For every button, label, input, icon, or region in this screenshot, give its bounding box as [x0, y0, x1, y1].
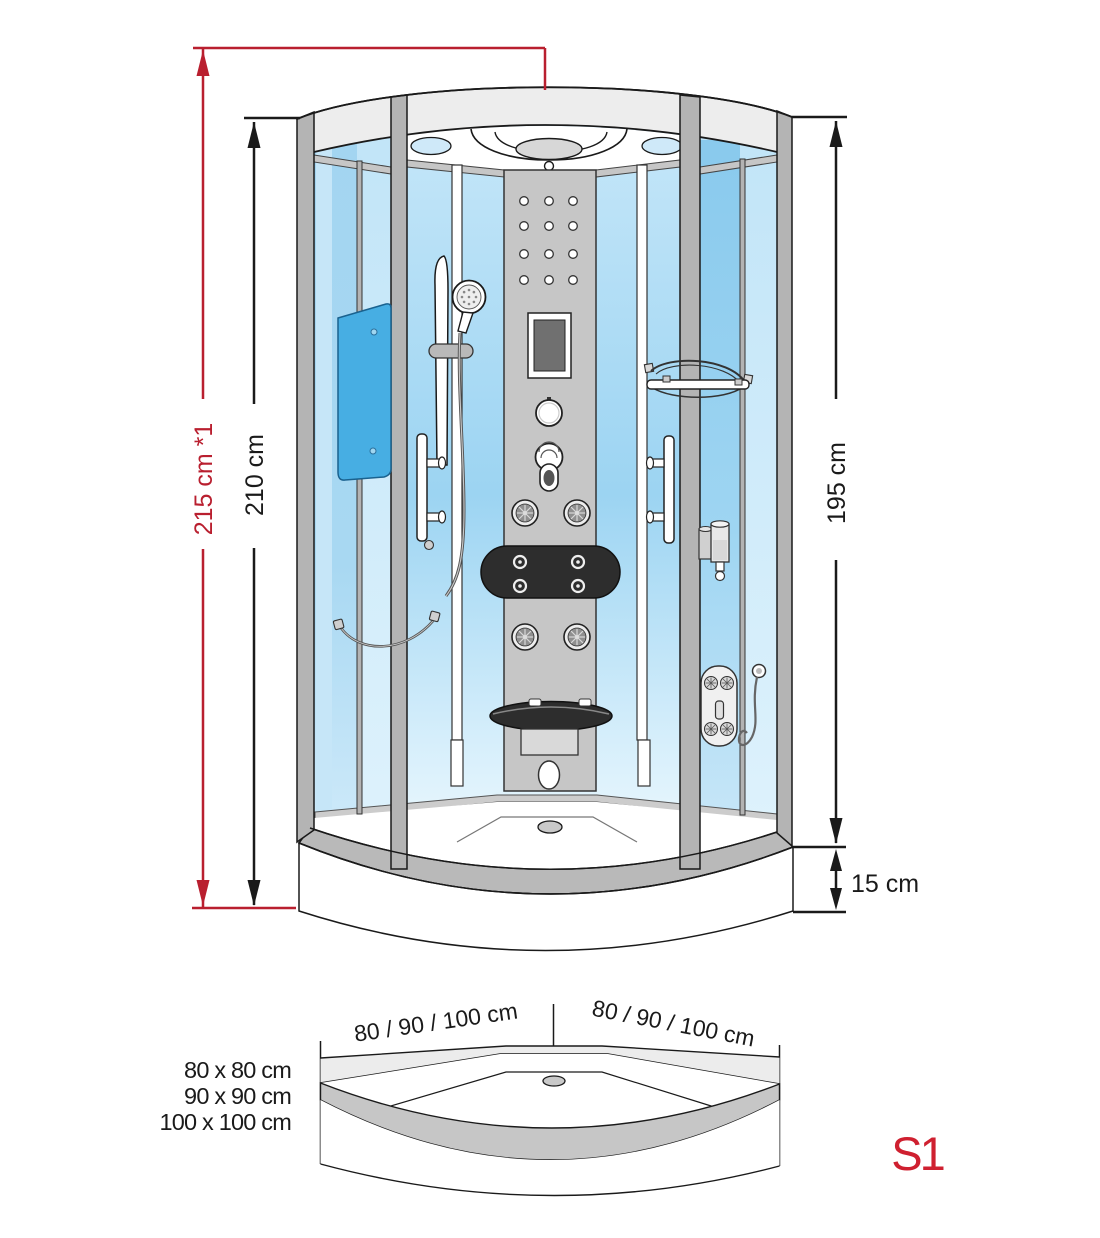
svg-text:210 cm: 210 cm	[241, 434, 269, 516]
svg-text:15 cm: 15 cm	[851, 870, 919, 898]
svg-text:215 cm *1: 215 cm *1	[190, 423, 218, 536]
svg-text:S1: S1	[891, 1127, 943, 1180]
svg-text:90 x 90 cm: 90 x 90 cm	[184, 1083, 291, 1109]
svg-text:100 x 100 cm: 100 x 100 cm	[160, 1109, 292, 1135]
svg-text:80 x 80 cm: 80 x 80 cm	[184, 1057, 291, 1083]
svg-text:195 cm: 195 cm	[823, 442, 851, 524]
